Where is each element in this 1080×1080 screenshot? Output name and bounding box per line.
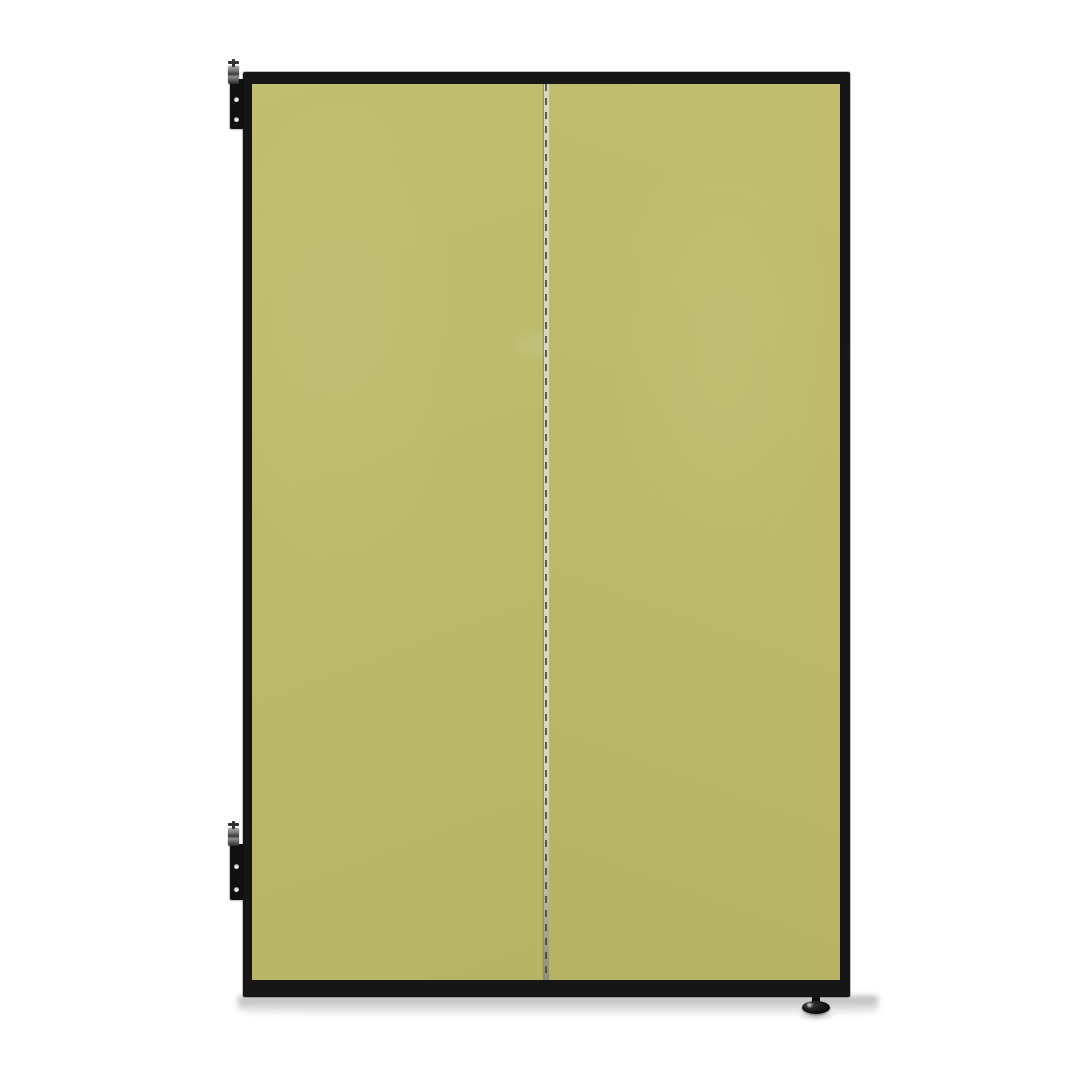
wall-bracket-top-icon xyxy=(230,79,244,129)
screw-hole-icon xyxy=(234,864,239,869)
screw-hole-icon xyxy=(234,117,239,122)
leveling-foot-icon xyxy=(802,996,830,1016)
screw-hole-icon xyxy=(234,887,239,892)
right-panel xyxy=(549,84,841,980)
fabric-highlight xyxy=(849,342,939,362)
panel-area xyxy=(252,84,840,980)
left-panel xyxy=(252,84,544,980)
wall-bracket-bottom-icon xyxy=(230,844,244,900)
foot-highlight xyxy=(807,1003,812,1007)
hinge-pin-top-icon xyxy=(228,66,239,84)
hinge-pin-bottom-icon xyxy=(228,828,239,846)
foot-glide xyxy=(802,1001,830,1014)
floor-shadow xyxy=(238,996,878,1020)
product-photo-scene xyxy=(0,0,1080,1080)
screw-hole-icon xyxy=(234,97,239,102)
partition-frame xyxy=(243,72,850,997)
